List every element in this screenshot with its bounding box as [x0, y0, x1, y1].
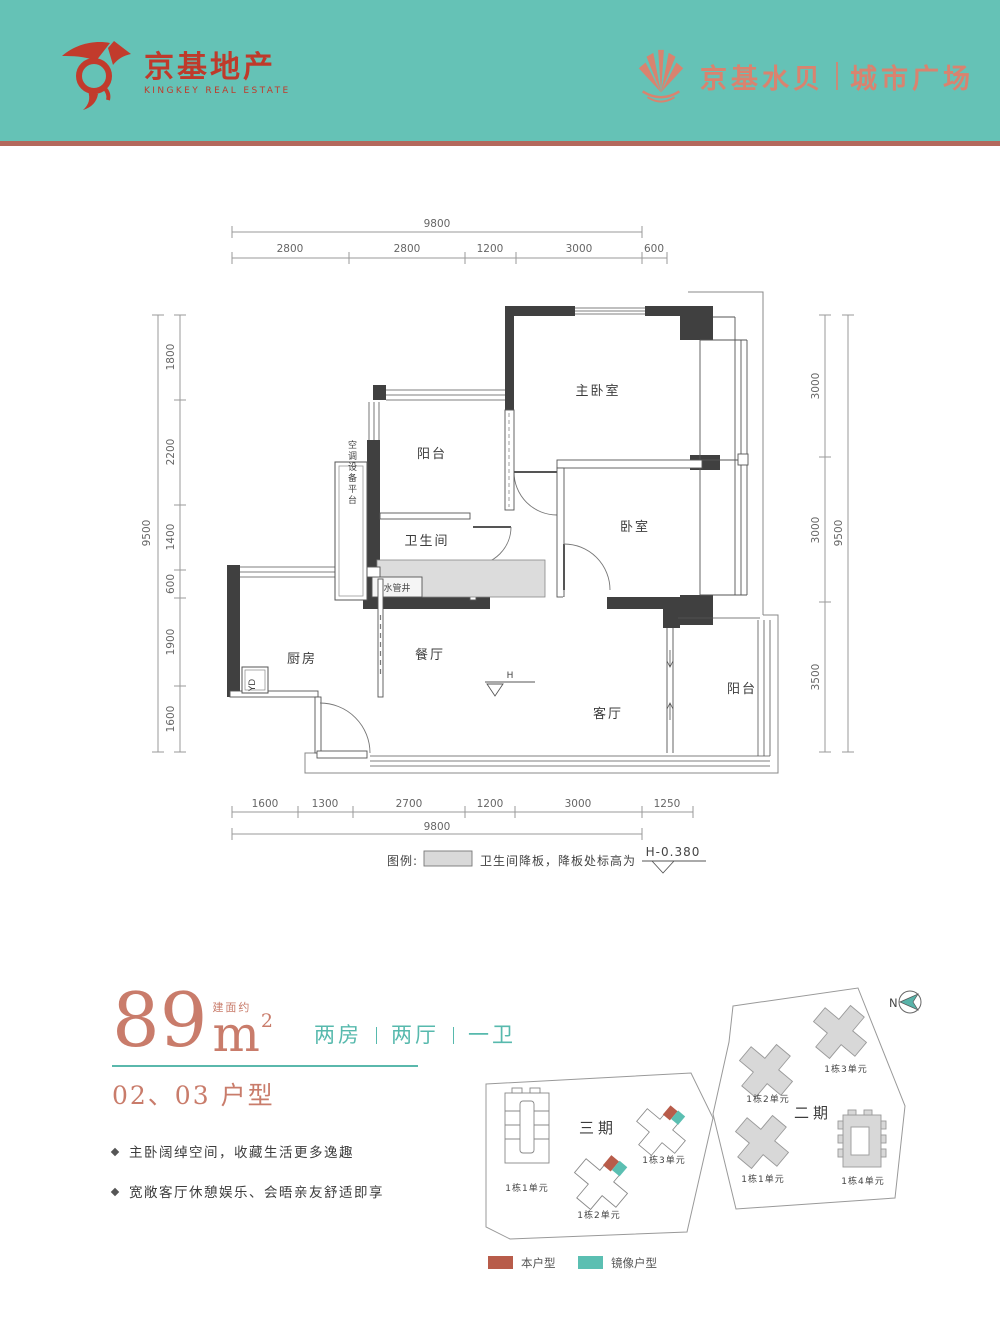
brand-right: 京基水贝 城市广场 — [632, 48, 974, 104]
floorplan-walls — [227, 292, 778, 773]
building-label: 1栋1单元 — [741, 1173, 784, 1185]
building-label: 1栋2单元 — [577, 1209, 620, 1221]
legend-prefix: 图例: — [387, 854, 418, 868]
legend-self-label: 本户型 — [521, 1256, 556, 1270]
dim-bot-3: 2700 — [396, 798, 423, 810]
dim-left-2: 2200 — [165, 439, 177, 466]
phase3-label: 三期 — [579, 1119, 617, 1137]
layout-separator — [376, 1027, 377, 1044]
room-label-kitchen: 厨房 — [287, 651, 317, 667]
selling-point-text: 宽敞客厅休憩娱乐、会晤亲友舒适即享 — [129, 1185, 384, 1201]
dim-top-total: 9800 — [424, 218, 451, 230]
brand-right-suffix: 城市广场 — [850, 57, 974, 96]
dim-left-total: 9500 — [141, 520, 153, 547]
room-label-balcony-top: 阳台 — [417, 447, 447, 462]
room-label-dining: 餐厅 — [415, 647, 445, 663]
phase2-parcel: 二期 1栋2单元 1栋3单元 1栋1单元 1栋4单元 — [713, 988, 905, 1209]
dim-bot-6: 1250 — [654, 798, 681, 810]
brand-right-name: 京基水贝 — [700, 57, 824, 96]
dim-left-6: 1600 — [165, 706, 177, 733]
layout-halls: 两厅 — [391, 1023, 439, 1047]
floorplan-legend: 图例: 卫生间降板，降板处标高为 H-0.380 — [387, 845, 706, 873]
dim-left-3: 1400 — [165, 524, 177, 551]
dim-bot-4: 1200 — [477, 798, 504, 810]
dimension-lines — [152, 226, 854, 840]
dim-top-1: 2800 — [277, 243, 304, 255]
dimension-labels: 9800 2800 2800 1200 3000 600 1600 1300 2… — [141, 218, 845, 833]
brand-left-subtitle: KINGKEY REAL ESTATE — [144, 86, 291, 96]
elevation-triangle-icon — [652, 861, 674, 873]
dim-top-2: 2800 — [394, 243, 421, 255]
compass: N — [889, 991, 921, 1013]
building-label: 1栋2单元 — [746, 1093, 789, 1105]
fan-icon — [632, 48, 690, 104]
room-label-bathroom: 卫生间 — [404, 534, 449, 549]
dim-right-3: 3500 — [810, 664, 822, 691]
room-label-pipe-shaft: 水管井 — [383, 582, 410, 594]
brand-right-divider — [836, 62, 838, 90]
legend-mirror-label: 镜像户型 — [611, 1256, 657, 1270]
area-unit: m — [212, 1005, 259, 1063]
dim-bot-1: 1600 — [252, 798, 279, 810]
diamond-bullet-icon — [111, 1148, 119, 1156]
building-label: 1栋4单元 — [841, 1175, 884, 1187]
building-label: 1栋3单元 — [642, 1154, 685, 1166]
building-p3-1 — [505, 1088, 549, 1163]
room-label-bedroom: 卧室 — [620, 519, 650, 535]
dim-top-4: 3000 — [566, 243, 593, 255]
dim-top-5: 600 — [644, 243, 664, 255]
dim-left-1: 1800 — [165, 344, 177, 371]
dim-left-5: 1900 — [165, 629, 177, 656]
dim-right-1: 3000 — [810, 373, 822, 400]
diamond-bullet-icon — [111, 1188, 119, 1196]
selling-point-text: 主卧阔绰空间，收藏生活更多逸趣 — [129, 1145, 354, 1161]
legend-mirror-swatch — [578, 1256, 603, 1269]
area-value: 89 — [112, 983, 207, 1058]
compass-n-label: N — [889, 996, 898, 1010]
accent-underline — [112, 1065, 418, 1067]
dim-bot-2: 1300 — [312, 798, 339, 810]
area-exponent: 2 — [261, 1010, 273, 1032]
phase2-label: 二期 — [794, 1104, 832, 1122]
brand-left: 京基地产 KINGKEY REAL ESTATE — [58, 34, 291, 112]
layout-rooms: 两房 — [314, 1023, 362, 1047]
page-header: 京基地产 KINGKEY REAL ESTATE 京基水贝 城市广场 — [0, 0, 1000, 146]
siteplan: 三期 1栋1单元 1栋2单元 1栋3单元 二期 1栋2单元 1栋3单元 1栋1单… — [480, 985, 1000, 1295]
phase3-parcel: 三期 1栋1单元 1栋2单元 1栋3单元 — [486, 1073, 713, 1239]
room-label-yd: YD — [248, 679, 258, 692]
dim-bot-total: 9800 — [424, 821, 451, 833]
room-label-ac-platform: 空调设备平台 — [346, 439, 357, 506]
dim-bot-5: 3000 — [565, 798, 592, 810]
building-p2-4 — [838, 1110, 886, 1167]
legend-slab-swatch — [424, 851, 472, 866]
dim-right-total: 9500 — [833, 520, 845, 547]
dim-right-2: 3000 — [810, 517, 822, 544]
kingkey-logo-icon — [58, 34, 132, 112]
legend-self-swatch — [488, 1256, 513, 1269]
room-label-master-bedroom: 主卧室 — [575, 383, 620, 399]
layout-separator — [453, 1027, 454, 1044]
floorplan: 9800 2800 2800 1200 3000 600 1600 1300 2… — [130, 205, 900, 895]
building-label: 1栋1单元 — [505, 1182, 548, 1194]
room-label-balcony-right: 阳台 — [727, 682, 757, 697]
legend-value: H-0.380 — [646, 845, 701, 859]
brand-left-name: 京基地产 — [144, 51, 291, 84]
room-label-living: 客厅 — [593, 706, 623, 722]
legend-text: 卫生间降板，降板处标高为 — [480, 853, 636, 868]
siteplan-legend: 本户型 镜像户型 — [488, 1256, 657, 1270]
dim-top-3: 1200 — [477, 243, 504, 255]
building-label: 1栋3单元 — [824, 1063, 867, 1075]
h-marker-label: H — [507, 671, 514, 681]
dim-left-4: 600 — [165, 574, 177, 594]
